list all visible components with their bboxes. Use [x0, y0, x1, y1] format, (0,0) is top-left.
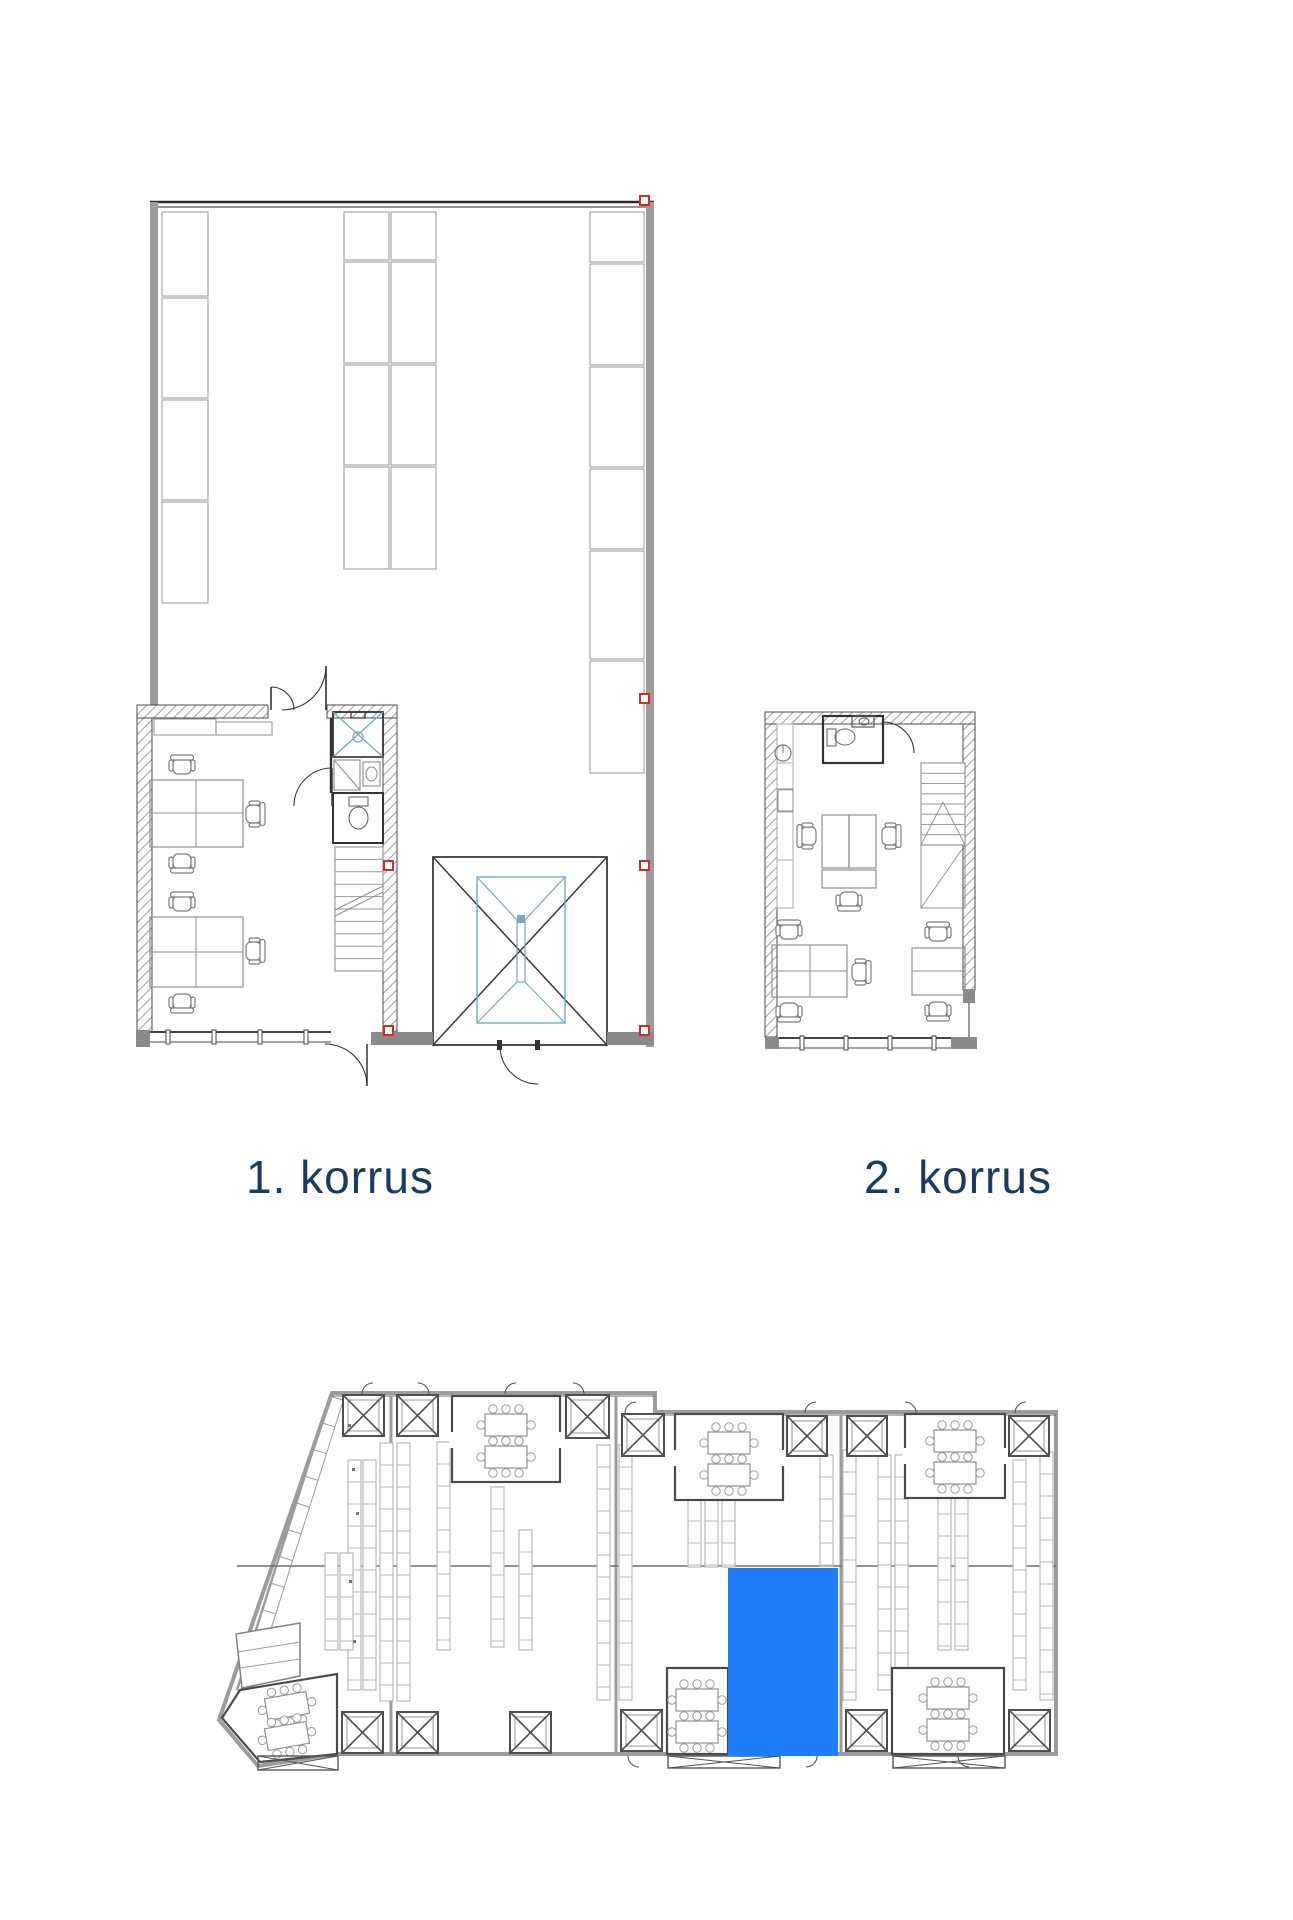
xbox — [510, 1712, 551, 1753]
toilet-bowl — [835, 729, 855, 745]
xbox — [847, 1416, 887, 1456]
door-arc — [500, 1046, 538, 1084]
line — [525, 982, 565, 1023]
rect — [672, 1450, 678, 1466]
line — [525, 877, 565, 920]
shelf — [344, 467, 389, 569]
redm — [640, 196, 649, 205]
chair — [797, 823, 816, 849]
redm — [384, 1026, 393, 1035]
rack — [619, 1445, 632, 1700]
chair — [169, 892, 195, 911]
rack — [340, 1553, 353, 1650]
chair — [852, 959, 871, 985]
shelf — [391, 365, 436, 465]
rack — [437, 1442, 450, 1650]
shelf — [162, 400, 208, 500]
shelf — [344, 365, 389, 465]
rect — [765, 1037, 779, 1049]
rack — [491, 1487, 504, 1647]
shelf — [590, 212, 644, 262]
chair — [246, 938, 265, 964]
stair-wall — [383, 718, 397, 1032]
floor-plan-drawing — [0, 0, 1293, 1920]
chair — [776, 1003, 802, 1022]
right-wall — [646, 202, 654, 1047]
toilet-tank — [349, 797, 368, 806]
chair — [246, 801, 265, 827]
xbox — [397, 1395, 438, 1436]
redm — [640, 694, 649, 703]
left-wall — [150, 202, 158, 707]
fixture — [778, 789, 793, 811]
rack — [597, 1445, 610, 1700]
xbox — [397, 1712, 438, 1753]
window-band — [779, 1036, 951, 1050]
xbox — [1009, 1710, 1050, 1751]
redm — [384, 861, 393, 870]
rect — [780, 1450, 786, 1466]
chair — [169, 755, 195, 774]
rect — [517, 915, 525, 923]
shelf — [391, 212, 436, 260]
rect — [1002, 1448, 1008, 1464]
shelf — [590, 264, 644, 365]
toilet-bowl — [349, 807, 368, 829]
line — [334, 760, 360, 790]
rack — [380, 1443, 393, 1701]
xbox — [846, 1710, 887, 1751]
rack — [1013, 1460, 1026, 1690]
shelf — [344, 212, 389, 260]
chair — [925, 922, 951, 941]
door-arc — [806, 1756, 817, 1767]
rect — [371, 1032, 433, 1045]
path — [366, 767, 377, 781]
door-arc — [628, 1756, 639, 1767]
door-arc — [958, 1756, 969, 1767]
shelf — [344, 262, 389, 363]
chair — [836, 892, 862, 911]
annex — [236, 1623, 300, 1688]
xbox — [622, 1414, 664, 1456]
xbox — [1009, 1416, 1049, 1456]
chair — [776, 920, 802, 939]
floor1-plan — [136, 196, 654, 1086]
xbox — [343, 1395, 384, 1436]
cabinet — [216, 722, 272, 735]
top-wall — [765, 712, 975, 724]
floor2-label: 2. korrus — [808, 1152, 1108, 1203]
xbox — [787, 1416, 827, 1456]
floor1-label: 1. korrus — [190, 1152, 490, 1203]
rect — [136, 1030, 150, 1047]
rack — [878, 1455, 891, 1690]
rack — [1040, 1452, 1053, 1700]
rect — [497, 1040, 502, 1050]
line — [477, 982, 517, 1023]
wc-room — [333, 793, 383, 843]
stairs — [335, 847, 383, 971]
chair — [169, 994, 195, 1013]
shelf — [162, 212, 208, 296]
xbox — [342, 1712, 383, 1753]
xbox — [621, 1710, 662, 1751]
rect — [535, 1040, 540, 1050]
shelf — [162, 298, 208, 398]
door-arc — [294, 768, 332, 806]
chair — [169, 854, 195, 873]
shelf — [391, 262, 436, 363]
rack — [843, 1450, 856, 1700]
shelf — [590, 551, 644, 659]
shelf — [162, 502, 208, 603]
dot — [348, 1424, 351, 1427]
shelf — [590, 367, 644, 467]
redm — [640, 1026, 649, 1035]
chair — [925, 1002, 951, 1021]
dot — [349, 1580, 352, 1583]
highlighted-unit[interactable] — [728, 1568, 838, 1756]
door-arc — [271, 687, 294, 710]
xbox — [566, 1395, 609, 1438]
shelf — [590, 661, 644, 773]
desk — [822, 870, 876, 888]
rect — [902, 1448, 908, 1464]
left-wall — [765, 724, 777, 1037]
line — [921, 845, 965, 908]
shelf — [391, 467, 436, 569]
rack — [397, 1443, 410, 1701]
rack — [519, 1530, 532, 1650]
door-arc — [325, 1044, 367, 1086]
rack — [363, 1460, 376, 1690]
desk — [822, 815, 849, 868]
dot — [352, 1468, 355, 1471]
desk — [849, 815, 876, 868]
site-plan — [219, 1383, 1056, 1770]
door-arc — [883, 722, 914, 753]
dot — [356, 1512, 359, 1515]
door-arc — [282, 666, 326, 710]
floor-plan-sheet: 1. korrus 2. korrus — [0, 0, 1293, 1920]
rack — [325, 1553, 338, 1650]
rect — [951, 1037, 977, 1049]
redm — [640, 861, 649, 870]
line — [477, 877, 517, 920]
rect — [449, 1432, 455, 1448]
dot — [353, 1640, 356, 1643]
rect — [557, 1432, 563, 1448]
office-wall — [137, 705, 268, 718]
rack — [820, 1455, 833, 1566]
window-band — [150, 1030, 331, 1044]
floor2-plan — [765, 712, 977, 1050]
cabinet — [154, 719, 216, 735]
chair — [882, 823, 901, 849]
shelf — [590, 469, 644, 549]
